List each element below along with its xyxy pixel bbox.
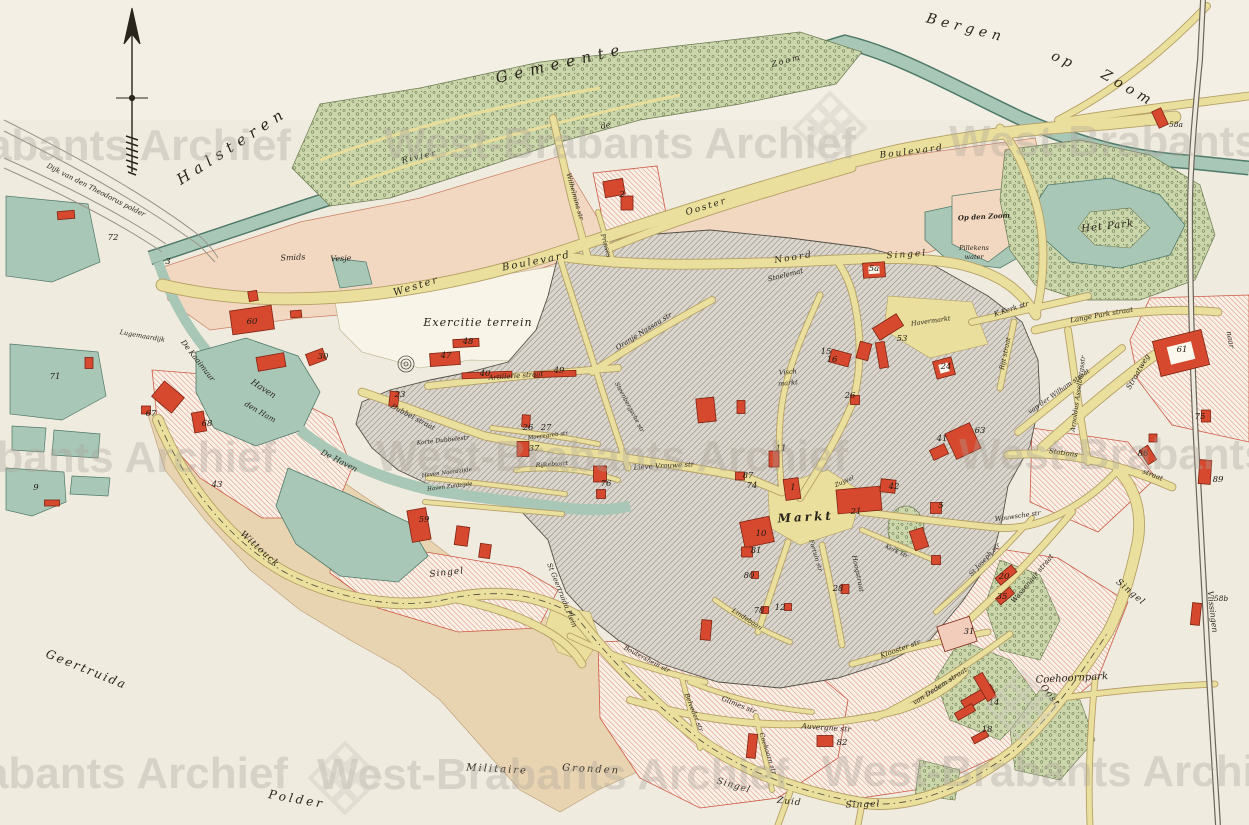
building-footprint xyxy=(700,620,712,641)
building-number: 18 xyxy=(982,725,993,735)
building-number: 75 xyxy=(1195,412,1206,422)
map-label: Singel xyxy=(845,799,880,810)
building-number: 23 xyxy=(394,390,406,400)
building-number: 5 xyxy=(938,501,943,511)
building-number: 16 xyxy=(827,355,838,365)
building-number: 61 xyxy=(1177,345,1188,355)
building-number: 30 xyxy=(318,352,329,362)
building-footprint xyxy=(85,358,93,369)
building-number: 12 xyxy=(775,603,786,613)
building-number: 9 xyxy=(33,483,39,493)
building-number: 72 xyxy=(108,233,119,243)
building-number: 3 xyxy=(165,257,170,267)
building-footprint xyxy=(45,500,60,506)
map-stage: 3727194367686030235947484049226273776151… xyxy=(0,0,1249,825)
archive-watermark-text: West-Brabants Archief xyxy=(0,433,276,482)
map-label: Exercitie terrein xyxy=(422,316,532,329)
building-number: 74 xyxy=(747,481,758,491)
building-footprint xyxy=(785,604,792,611)
building-number: 47 xyxy=(440,351,452,361)
building-number: 59 xyxy=(419,515,430,525)
map-label: Pillekens xyxy=(958,244,989,252)
building-number: 21 xyxy=(850,507,862,517)
building-number: 49 xyxy=(553,366,565,376)
building-number: 31 xyxy=(964,627,975,637)
building-number: 20 xyxy=(998,572,1010,582)
building-number: 41 xyxy=(936,434,948,444)
building-number: 81 xyxy=(751,546,762,556)
building-footprint xyxy=(290,310,302,318)
archive-watermark-text: West-Brabants Archief xyxy=(376,432,848,481)
building-number: 42 xyxy=(888,482,900,492)
archive-watermark-text: West-Brabants Archief xyxy=(959,430,1249,479)
archive-watermark-text: West-Brabants Archief xyxy=(822,747,1249,796)
building-number: 1 xyxy=(790,483,795,493)
map-label: Visch xyxy=(779,367,797,377)
map-label: Markt xyxy=(776,509,834,526)
building-footprint xyxy=(1190,603,1201,626)
archive-watermark-text: West-Brabants Archief xyxy=(949,117,1249,166)
building-number: 78 xyxy=(754,606,765,616)
building-number: 68 xyxy=(202,419,213,429)
building-footprint xyxy=(932,556,941,565)
map-label: Smids xyxy=(280,252,305,262)
building-number: 67 xyxy=(146,409,157,419)
building-number: 48 xyxy=(462,337,474,347)
building-footprint xyxy=(248,290,259,301)
building-footprint xyxy=(696,397,716,423)
archive-watermark-text: West-Brabants Archief xyxy=(384,119,856,168)
building-number: 2 xyxy=(618,190,624,200)
building-number: 24 xyxy=(940,362,952,372)
town-plan-svg: 3727194367686030235947484049226273776151… xyxy=(0,0,1249,825)
map-label: Vesje xyxy=(330,253,352,263)
building-footprint xyxy=(597,490,606,499)
building-footprint xyxy=(57,210,75,219)
building-footprint xyxy=(479,543,492,558)
building-number: 5a xyxy=(869,264,879,274)
building-footprint xyxy=(817,736,833,747)
map-label: water xyxy=(964,253,984,261)
building-number: 28 xyxy=(832,584,844,594)
archive-watermark-text: West-Brabants Archief xyxy=(0,121,291,170)
building-number: 10 xyxy=(756,529,767,539)
building-footprint xyxy=(454,526,470,547)
building-number: 80 xyxy=(744,571,755,581)
archive-watermark-text: West-Brabants Archief xyxy=(317,750,789,799)
archive-watermark-text: West-Brabants Archief xyxy=(0,749,288,798)
building-number: 53 xyxy=(897,334,908,344)
building-number: 35 xyxy=(997,592,1008,602)
building-footprint xyxy=(737,401,745,414)
building-number: 71 xyxy=(50,372,61,382)
building-number: 60 xyxy=(247,317,258,327)
building-number: 26 xyxy=(844,391,856,401)
